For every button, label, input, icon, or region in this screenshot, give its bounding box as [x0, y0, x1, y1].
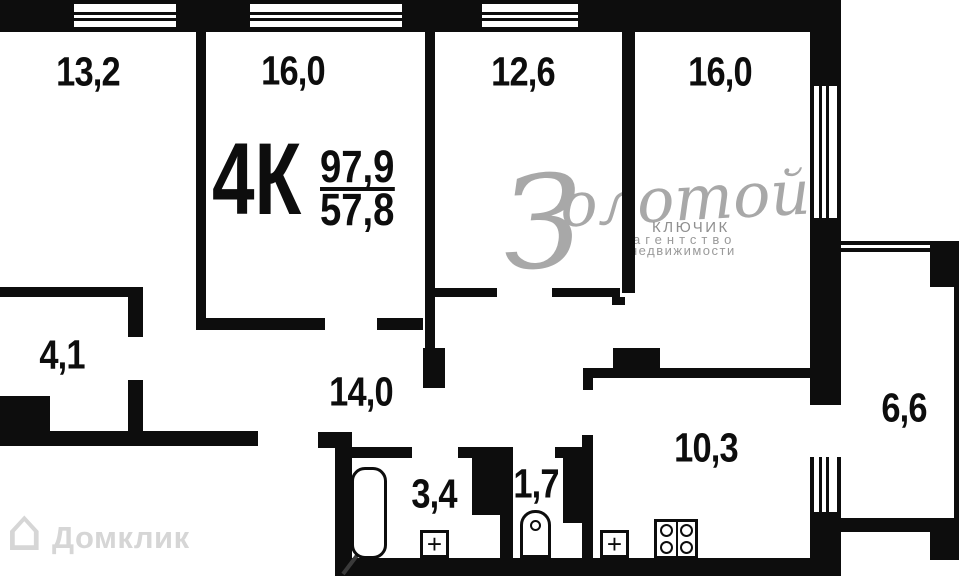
stove-burner: [660, 541, 673, 554]
window-room2-line: [250, 12, 402, 15]
domclick-house-icon: ⌂: [6, 496, 43, 564]
room-label-1-7: 1,7: [513, 461, 558, 508]
stove-divider: [676, 522, 678, 556]
wall-storage-right-b: [128, 380, 143, 431]
stove-burner: [660, 524, 673, 537]
window-room3-line: [482, 12, 578, 15]
wall-bath-wc-top: [458, 447, 513, 458]
room-label-13-2: 13,2: [56, 49, 120, 96]
window-kitchen-line: [826, 457, 829, 512]
wall-bathroom-left: [335, 448, 352, 576]
wall-kitchen-top-duct: [613, 348, 660, 368]
wall-room2-room3-pier: [423, 348, 445, 388]
wall-room2-room3: [425, 32, 435, 348]
window-room3-line: [482, 18, 578, 21]
kitchen-sink-icon: +: [600, 530, 629, 558]
balcony-corner-bottom: [930, 518, 958, 560]
wall-wc-right-top: [555, 447, 593, 458]
wall-room2-bottom-b: [377, 318, 423, 330]
domclick-watermark-label: Домклик: [52, 520, 190, 556]
stove-burner: [680, 524, 693, 537]
wall-room1-room2: [196, 32, 206, 330]
bathroom-sink-icon: +: [420, 530, 449, 558]
wall-bath-wc-block: [472, 458, 500, 515]
balcony-railing-right: [954, 241, 959, 560]
wall-room3-room4: [622, 32, 635, 293]
living-area-value: 57,8: [320, 191, 394, 228]
window-room4-line: [826, 86, 829, 218]
stove-icon: [654, 519, 698, 559]
toilet-icon: [520, 510, 551, 558]
wall-room3-bottom-b: [552, 288, 620, 297]
wall-hall-corner-block: [0, 396, 50, 446]
wall-kitchen-top: [583, 368, 810, 378]
window-room1: [74, 4, 176, 27]
room-label-3-4: 3,4: [411, 471, 456, 518]
window-kitchen-line: [819, 457, 822, 512]
window-room1-line: [74, 12, 176, 15]
room-label-12-6: 12,6: [491, 49, 555, 96]
wall-kitchen-left-stub: [583, 378, 593, 390]
wall-wc-right-block: [563, 458, 585, 523]
wall-storage-top: [0, 287, 143, 297]
wall-bathroom-left-top: [318, 432, 352, 448]
room-label-6-6: 6,6: [881, 385, 926, 432]
wall-bathroom-top: [352, 447, 412, 458]
room-label-16-0-right: 16,0: [688, 49, 752, 96]
balcony-railing-top: [841, 248, 930, 252]
window-room3: [482, 4, 578, 27]
room-label-10-3: 10,3: [674, 425, 738, 472]
wall-room2-bottom-a: [196, 318, 325, 330]
wall-storage-right-a: [128, 297, 143, 337]
room-label-16-0-left: 16,0: [261, 48, 325, 95]
wall-room3-bottom-a: [435, 288, 497, 297]
agency-watermark-line3: недвижимости: [630, 243, 736, 258]
apartment-type-label: 4К: [212, 128, 301, 230]
room-label-4-1: 4,1: [39, 332, 84, 379]
wall-bottom: [335, 558, 810, 576]
toilet-hole: [530, 520, 541, 531]
wall-bath-wc: [500, 458, 513, 560]
wall-hall-bottom: [50, 431, 258, 446]
window-room2: [250, 4, 402, 27]
plan-title: 4К: [212, 128, 331, 230]
balcony-railing-top: [841, 241, 930, 245]
floor-plan: З олотой КЛЮЧИК агентство недвижимости ⌂…: [0, 0, 960, 576]
wall-room3-bottom-step: [612, 297, 625, 305]
window-room4-line: [819, 86, 822, 218]
window-room1-line: [74, 18, 176, 21]
area-fraction: 97,9 57,8: [320, 148, 394, 228]
window-room2-line: [250, 18, 402, 21]
stove-burner: [680, 541, 693, 554]
room-label-14-0: 14,0: [329, 369, 393, 416]
bathtub-icon: [351, 467, 387, 559]
